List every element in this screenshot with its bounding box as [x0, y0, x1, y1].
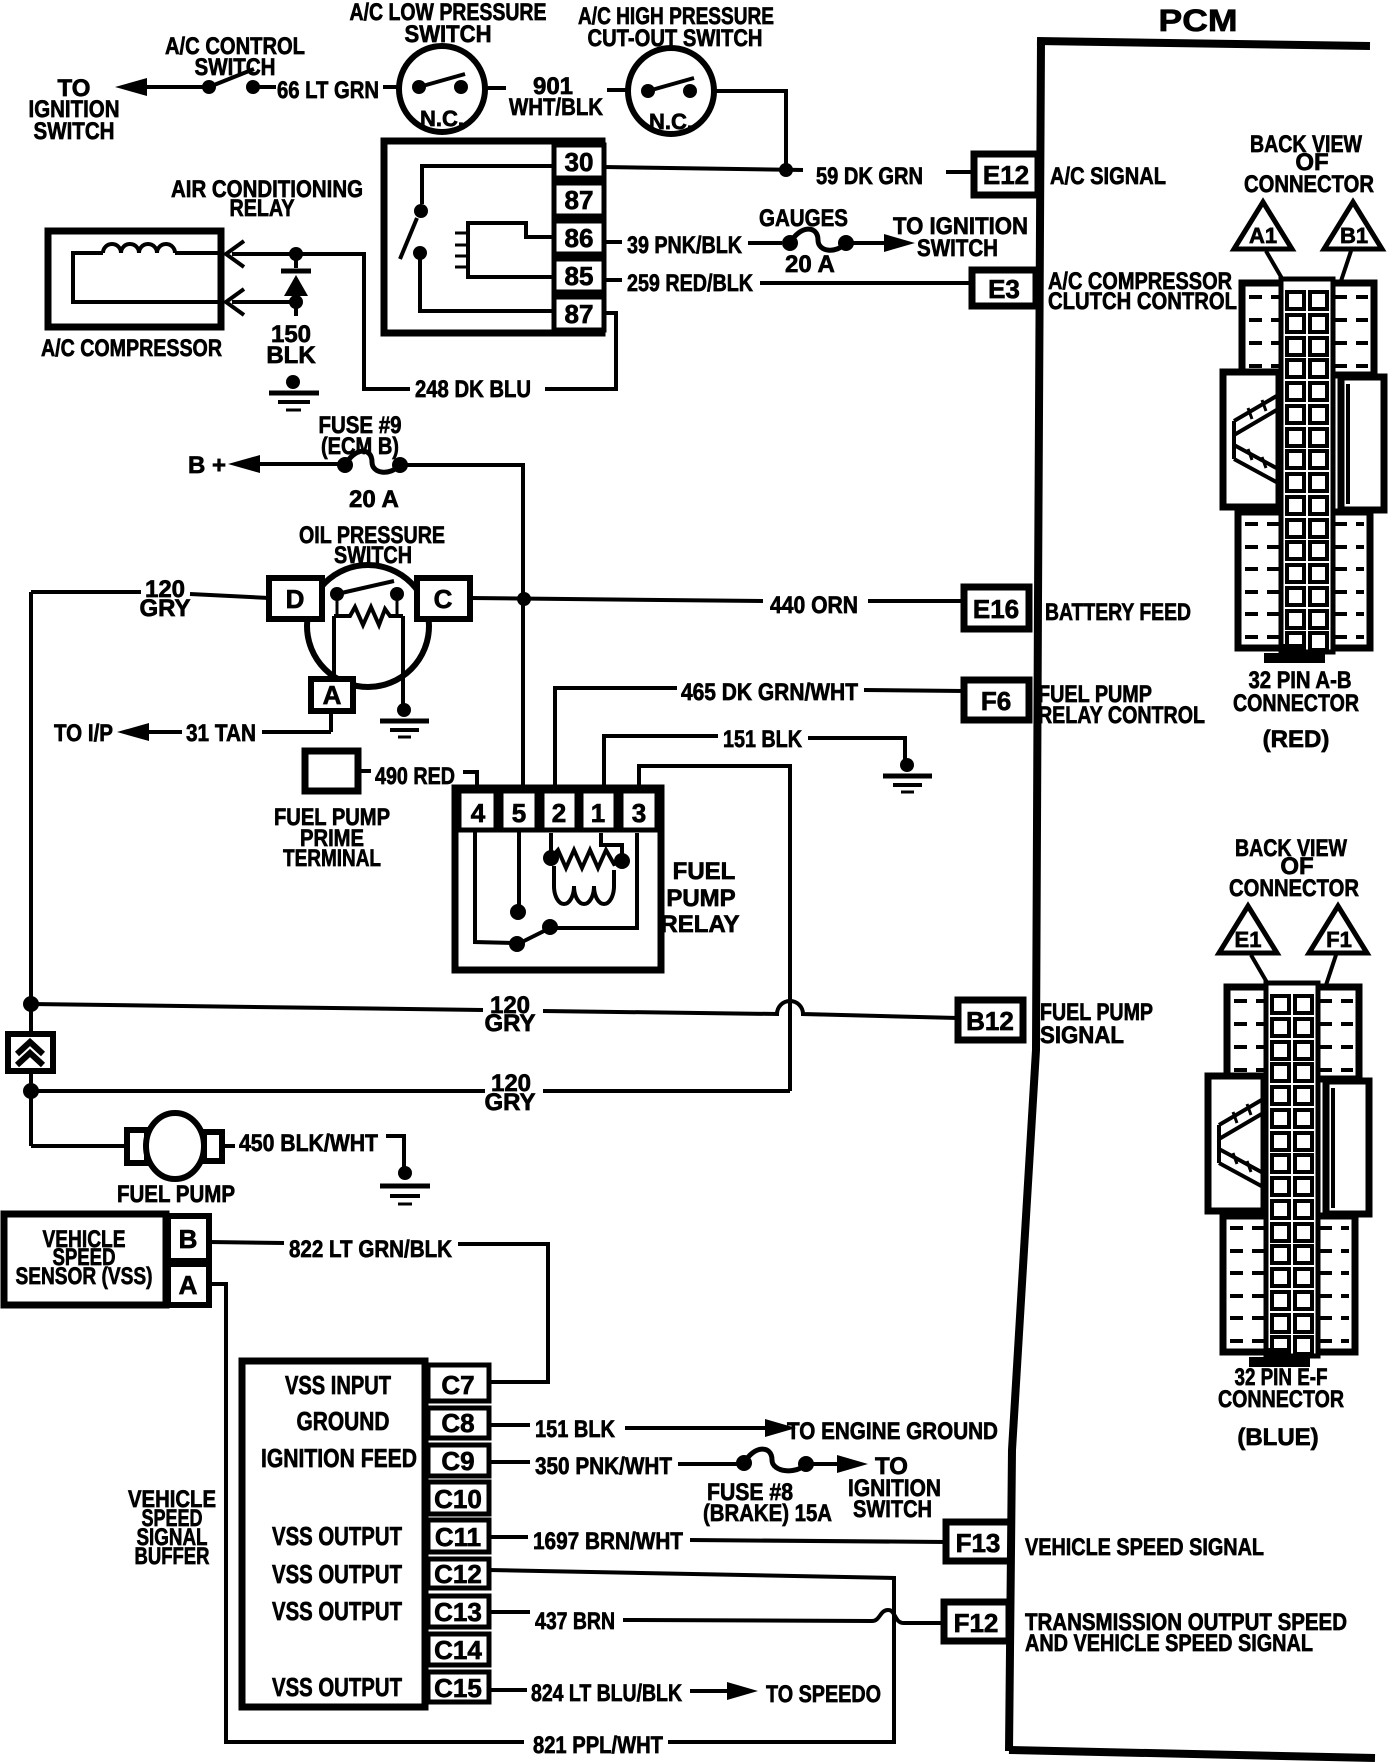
svg-text:(RED): (RED) [1263, 726, 1330, 753]
svg-text:1697 BRN/WHT: 1697 BRN/WHT [533, 1528, 683, 1555]
svg-text:F13: F13 [956, 1528, 1001, 1558]
svg-text:BUFFER: BUFFER [135, 1543, 210, 1570]
svg-text:59 DK GRN: 59 DK GRN [816, 163, 923, 190]
svg-text:(BLUE): (BLUE) [1237, 1424, 1318, 1451]
svg-text:PCM: PCM [1159, 3, 1238, 38]
svg-text:C13: C13 [434, 1597, 482, 1627]
svg-text:450 BLK/WHT: 450 BLK/WHT [239, 1130, 378, 1157]
svg-text:GROUND: GROUND [297, 1406, 390, 1436]
svg-text:C7: C7 [441, 1370, 474, 1400]
svg-text:FUEL: FUEL [673, 858, 736, 885]
svg-text:VSS INPUT: VSS INPUT [285, 1370, 391, 1400]
svg-text:86: 86 [565, 223, 594, 253]
svg-text:B +: B + [188, 452, 226, 479]
svg-text:E16: E16 [973, 594, 1019, 624]
svg-text:TERMINAL: TERMINAL [283, 845, 381, 872]
svg-text:248 DK BLU: 248 DK BLU [415, 376, 531, 403]
svg-text:E1: E1 [1235, 927, 1262, 952]
svg-text:20 A: 20 A [785, 251, 835, 278]
svg-text:440 ORN: 440 ORN [770, 592, 858, 619]
svg-text:B: B [179, 1224, 198, 1254]
svg-text:F6: F6 [981, 686, 1011, 716]
svg-text:IGNITION FEED: IGNITION FEED [261, 1443, 417, 1473]
svg-text:31 TAN: 31 TAN [186, 720, 256, 747]
svg-text:VSS OUTPUT: VSS OUTPUT [272, 1596, 402, 1626]
svg-text:C12: C12 [434, 1559, 482, 1589]
svg-text:C: C [434, 584, 453, 614]
svg-text:N.C.: N.C. [420, 106, 464, 131]
svg-text:C15: C15 [434, 1673, 482, 1703]
svg-text:VSS OUTPUT: VSS OUTPUT [272, 1521, 402, 1551]
svg-text:C11: C11 [435, 1522, 481, 1552]
svg-text:B12: B12 [966, 1006, 1014, 1036]
svg-text:(ECM B): (ECM B) [321, 433, 399, 460]
svg-text:N.C.: N.C. [649, 109, 693, 134]
svg-text:85: 85 [565, 261, 594, 291]
svg-text:20 A: 20 A [349, 486, 399, 513]
svg-text:RELAY: RELAY [660, 911, 739, 938]
svg-text:F12: F12 [954, 1608, 999, 1638]
svg-text:C10: C10 [434, 1484, 482, 1514]
svg-text:437 BRN: 437 BRN [535, 1608, 615, 1635]
svg-text:FUEL PUMP: FUEL PUMP [117, 1181, 235, 1208]
svg-text:TO ENGINE GROUND: TO ENGINE GROUND [787, 1418, 998, 1445]
svg-text:39 PNK/BLK: 39 PNK/BLK [627, 232, 743, 259]
svg-text:CONNECTOR: CONNECTOR [1218, 1386, 1344, 1413]
svg-text:E3: E3 [988, 274, 1020, 304]
svg-text:VSS OUTPUT: VSS OUTPUT [272, 1672, 402, 1702]
svg-text:259 RED/BLK: 259 RED/BLK [627, 270, 754, 297]
svg-text:66 LT GRN: 66 LT GRN [277, 77, 379, 104]
svg-text:B1: B1 [1340, 223, 1368, 248]
svg-text:822 LT GRN/BLK: 822 LT GRN/BLK [289, 1236, 453, 1263]
svg-text:RELAY CONTROL: RELAY CONTROL [1038, 702, 1205, 729]
svg-text:D: D [286, 584, 305, 614]
svg-text:SWITCH: SWITCH [34, 118, 115, 145]
svg-text:GRY: GRY [484, 1089, 535, 1116]
svg-text:1: 1 [591, 798, 605, 828]
svg-text:VSS OUTPUT: VSS OUTPUT [272, 1559, 402, 1589]
svg-text:C14: C14 [434, 1635, 482, 1665]
svg-text:A/C SIGNAL: A/C SIGNAL [1050, 163, 1166, 190]
svg-text:SWITCH: SWITCH [853, 1496, 932, 1523]
svg-text:GRY: GRY [139, 595, 190, 622]
svg-text:A: A [179, 1270, 198, 1300]
svg-text:A/C COMPRESSOR: A/C COMPRESSOR [41, 335, 222, 362]
svg-text:CONNECTOR: CONNECTOR [1244, 171, 1374, 198]
svg-text:CONNECTOR: CONNECTOR [1233, 690, 1359, 717]
svg-text:465 DK GRN/WHT: 465 DK GRN/WHT [681, 679, 858, 706]
svg-text:SWITCH: SWITCH [917, 235, 998, 262]
svg-text:151 BLK: 151 BLK [535, 1416, 616, 1443]
svg-text:C9: C9 [441, 1446, 474, 1476]
svg-text:E12: E12 [983, 160, 1029, 190]
svg-text:30: 30 [565, 147, 594, 177]
svg-text:87: 87 [565, 185, 594, 215]
svg-text:5: 5 [512, 798, 526, 828]
svg-text:87: 87 [565, 299, 594, 329]
svg-text:WHT/BLK: WHT/BLK [509, 94, 604, 121]
svg-text:GRY: GRY [484, 1010, 535, 1037]
svg-text:SIGNAL: SIGNAL [1040, 1022, 1124, 1049]
svg-text:BLK: BLK [266, 342, 316, 369]
svg-text:4: 4 [471, 798, 486, 828]
svg-text:490 RED: 490 RED [375, 763, 455, 790]
svg-text:350 PNK/WHT: 350 PNK/WHT [535, 1453, 672, 1480]
svg-text:TO SPEEDO: TO SPEEDO [766, 1681, 881, 1708]
svg-text:A1: A1 [1249, 223, 1277, 248]
svg-text:F1: F1 [1326, 927, 1352, 952]
svg-text:TO I/P: TO I/P [54, 720, 113, 747]
svg-text:RELAY: RELAY [230, 195, 295, 222]
svg-text:821 PPL/WHT: 821 PPL/WHT [533, 1732, 663, 1759]
svg-text:3: 3 [632, 798, 646, 828]
svg-text:824 LT BLU/BLK: 824 LT BLU/BLK [531, 1680, 683, 1707]
svg-text:SENSOR (VSS): SENSOR (VSS) [16, 1263, 153, 1290]
svg-text:VEHICLE SPEED SIGNAL: VEHICLE SPEED SIGNAL [1025, 1534, 1264, 1561]
svg-text:(BRAKE) 15A: (BRAKE) 15A [703, 1500, 832, 1527]
svg-text:PUMP: PUMP [666, 885, 735, 912]
svg-text:A: A [323, 680, 342, 710]
svg-text:2: 2 [552, 798, 566, 828]
svg-text:AND VEHICLE SPEED SIGNAL: AND VEHICLE SPEED SIGNAL [1025, 1630, 1313, 1657]
svg-text:BATTERY FEED: BATTERY FEED [1045, 599, 1191, 626]
svg-text:C8: C8 [441, 1408, 474, 1438]
svg-text:151 BLK: 151 BLK [723, 726, 803, 753]
svg-text:CLUTCH CONTROL: CLUTCH CONTROL [1048, 288, 1237, 315]
